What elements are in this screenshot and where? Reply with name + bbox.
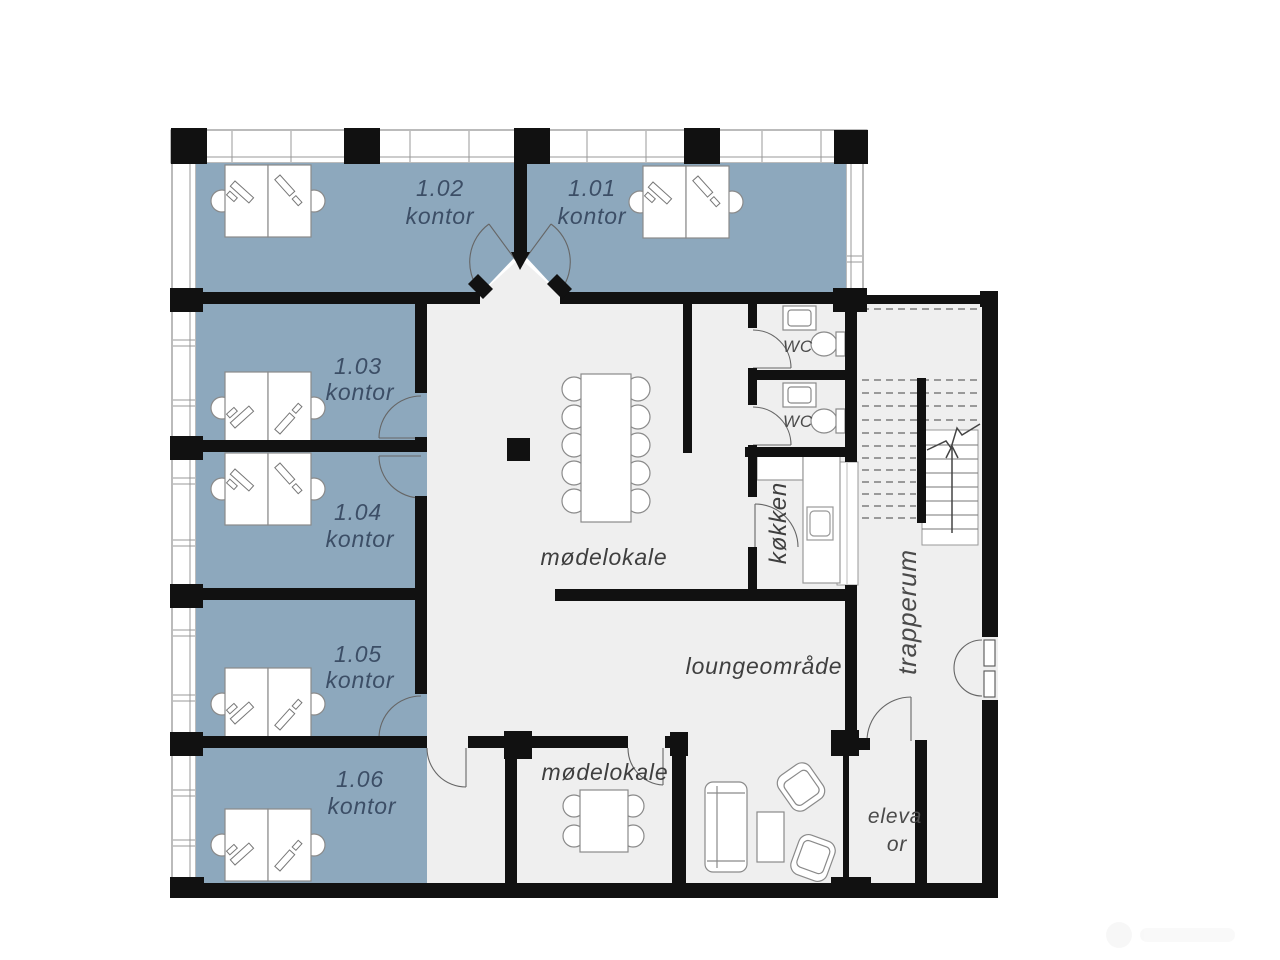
lounge-coffee-table (757, 812, 784, 862)
desk-pair-104 (211, 453, 325, 525)
room-label-stairwell: trapperum (892, 549, 922, 675)
room-label-lounge: loungeområde (686, 653, 843, 679)
svg-text:eleva: eleva (868, 805, 922, 828)
room-label-kitchen: køkken (765, 482, 792, 564)
column (504, 731, 532, 759)
watermark-logo-icon (1106, 922, 1132, 948)
column (170, 584, 203, 608)
column (170, 877, 204, 898)
svg-text:or: or (887, 833, 907, 856)
svg-text:1.05: 1.05 (334, 641, 382, 667)
column (831, 730, 859, 756)
column (170, 732, 203, 756)
column (684, 128, 720, 164)
room-label-wc2: WC (783, 412, 813, 431)
desk-pair-106 (211, 809, 325, 881)
svg-text:1.06: 1.06 (336, 766, 384, 792)
column (514, 128, 550, 164)
floor-plan-drawing: 1.02 kontor 1.01 kontor 1.03 kontor 1.04… (0, 0, 1280, 960)
svg-text:1.01: 1.01 (568, 175, 616, 201)
desk-pair-101 (629, 166, 743, 238)
svg-text:1.03: 1.03 (334, 353, 382, 379)
desk-pair-105 (211, 668, 325, 740)
column (507, 438, 530, 461)
watermark (1106, 922, 1235, 948)
svg-text:kontor: kontor (326, 667, 395, 693)
svg-text:1.02: 1.02 (416, 175, 464, 201)
room-label-wc1: WC (783, 337, 813, 356)
svg-text:kontor: kontor (326, 379, 395, 405)
column (833, 288, 867, 312)
desk-pair-103 (211, 372, 325, 444)
column (834, 130, 868, 164)
column (670, 732, 688, 756)
column (980, 291, 998, 307)
watermark-text-shape (1140, 928, 1235, 942)
room-label-meeting-small: mødelokale (542, 759, 669, 785)
window-band-left (172, 163, 196, 883)
lounge-sofa (705, 782, 747, 872)
desk-pair-102 (211, 165, 325, 237)
column (344, 128, 380, 164)
column (171, 128, 207, 164)
column (170, 288, 203, 312)
svg-text:1.04: 1.04 (334, 499, 382, 525)
svg-text:kontor: kontor (326, 526, 395, 552)
window-band-right (846, 163, 863, 290)
column (831, 877, 871, 898)
floor-plan-page: 1.02 kontor 1.01 kontor 1.03 kontor 1.04… (0, 0, 1280, 960)
room-label-meeting-main: mødelokale (541, 544, 668, 570)
column (170, 436, 203, 460)
svg-text:kontor: kontor (558, 203, 627, 229)
svg-text:kontor: kontor (406, 203, 475, 229)
meeting-table-main (562, 374, 650, 522)
svg-text:kontor: kontor (328, 793, 397, 819)
